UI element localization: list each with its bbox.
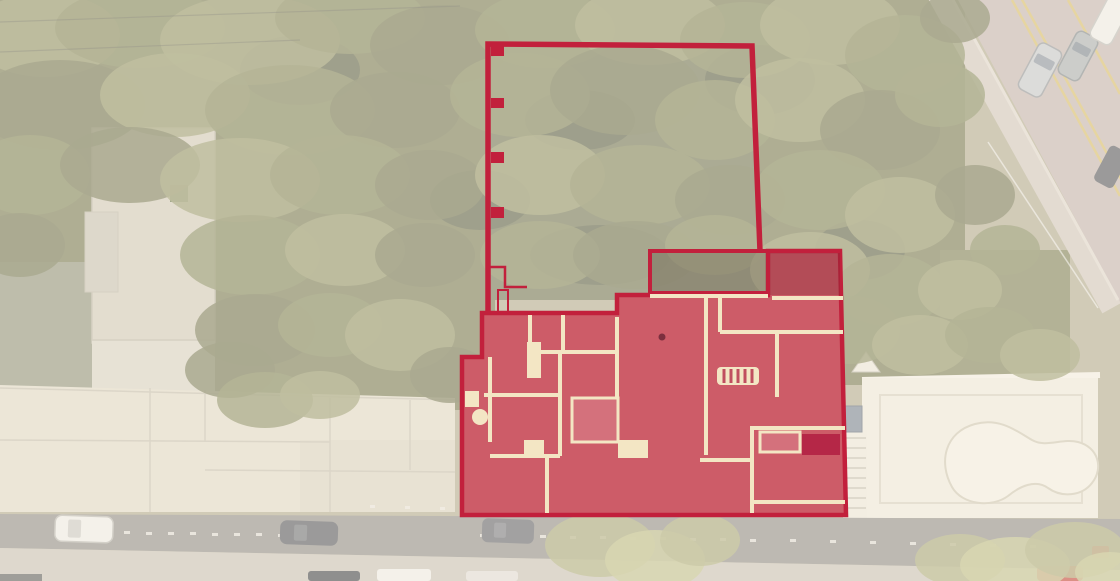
aerial-map-view <box>0 0 1120 581</box>
patio-area <box>650 251 768 293</box>
light-room-2 <box>760 432 800 452</box>
light-room <box>572 398 618 442</box>
plan-dot <box>659 334 666 341</box>
dark-room <box>802 434 840 455</box>
staircase-symbol <box>717 367 759 385</box>
